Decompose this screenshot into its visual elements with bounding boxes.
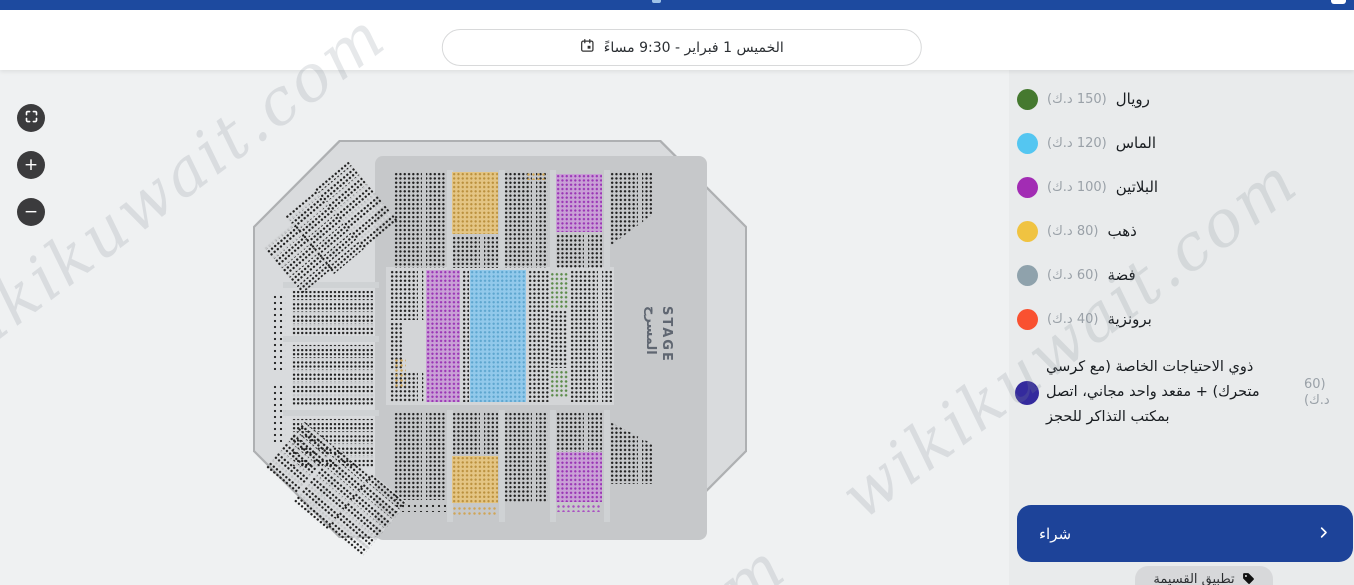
ticket-seatmap-page: الخميس 1 فبراير - 9:30 مساءً — [0, 0, 1354, 585]
seat-section-standard[interactable] — [556, 234, 602, 268]
tier-row-platinum[interactable]: (100 د.ك) البلاتين — [1009, 165, 1354, 209]
fit-screen-button[interactable] — [17, 104, 45, 132]
tier-name: الماس — [1116, 134, 1156, 152]
seat-section-standard[interactable] — [528, 270, 549, 402]
chevron-right-icon — [1316, 525, 1331, 543]
seat-section-royal[interactable] — [550, 370, 568, 398]
zoom-in-button[interactable]: + — [17, 151, 45, 179]
tier-row-silver[interactable]: (60 د.ك) فضة — [1009, 253, 1354, 297]
seat-section-standard[interactable] — [272, 384, 286, 442]
seat-section-platinum[interactable] — [426, 270, 460, 402]
tier-price: (120 د.ك) — [1047, 136, 1107, 151]
tier-color-swatch — [1017, 221, 1038, 242]
tier-name: فضة — [1107, 266, 1135, 284]
header: الخميس 1 فبراير - 9:30 مساءً — [0, 10, 1354, 70]
aisle — [604, 170, 610, 270]
stage-label: STAGE المسرح — [642, 306, 674, 363]
seat-section-standard[interactable] — [462, 270, 469, 402]
tier-color-swatch — [1015, 381, 1039, 405]
seat-section-gold[interactable] — [452, 456, 498, 503]
seat-section-standard[interactable] — [292, 344, 374, 406]
aisle — [604, 410, 610, 522]
seat-section-standard[interactable] — [452, 236, 498, 268]
stage-label-en: STAGE — [658, 306, 674, 363]
tier-price: (150 د.ك) — [1047, 92, 1107, 107]
tier-name: رويال — [1116, 90, 1150, 108]
seat-section-platinum[interactable] — [556, 452, 602, 502]
menu-fragment — [1331, 0, 1346, 4]
buy-button-label: شراء — [1039, 525, 1071, 543]
stage-label-ar: المسرح — [642, 306, 658, 363]
seat-section-standard[interactable] — [550, 310, 568, 368]
seat-section-gold[interactable] — [452, 172, 498, 234]
plus-icon: + — [24, 157, 38, 174]
tier-color-swatch — [1017, 309, 1038, 330]
tier-row-bronze[interactable]: (40 د.ك) برونزية — [1009, 297, 1354, 341]
pricing-legend-panel: (150 د.ك) رويال (120 د.ك) الماس (100 د.ك… — [1009, 70, 1354, 585]
zoom-out-button[interactable]: − — [17, 198, 45, 226]
seat-section-standard[interactable] — [394, 172, 446, 268]
logo-fragment — [652, 0, 661, 3]
tier-name: ذهب — [1107, 222, 1136, 240]
tier-list: (150 د.ك) رويال (120 د.ك) الماس (100 د.ك… — [1009, 70, 1354, 341]
tier-color-swatch — [1017, 133, 1038, 154]
tier-price: (40 د.ك) — [1047, 312, 1098, 327]
seat-section-standard[interactable] — [452, 412, 498, 456]
buy-button[interactable]: شراء — [1017, 505, 1353, 562]
tier-color-swatch — [1017, 265, 1038, 286]
apply-coupon-label: تطبيق القسيمة — [1153, 572, 1234, 585]
tag-icon — [1242, 570, 1255, 585]
selected-showtime: الخميس 1 فبراير - 9:30 مساءً — [604, 40, 784, 56]
tier-name: برونزية — [1107, 310, 1151, 328]
minus-icon: − — [24, 204, 38, 221]
seat-section-diamond[interactable] — [470, 270, 526, 402]
seat-section-standard[interactable] — [292, 290, 374, 336]
seat-section-gold[interactable] — [452, 506, 498, 516]
seat-section-gold[interactable] — [526, 172, 546, 180]
aisle — [283, 410, 379, 416]
tier-name: ذوي الاحتياجات الخاصة (مع كرسي متحرك) + … — [1046, 355, 1297, 430]
seat-section-royal[interactable] — [550, 272, 568, 308]
tier-row-accessible[interactable]: ذوي الاحتياجات الخاصة (مع كرسي متحرك) + … — [1009, 345, 1354, 440]
seat-section-standard[interactable] — [272, 294, 286, 370]
seat-section-gold[interactable] — [394, 358, 406, 388]
tier-name: البلاتين — [1116, 178, 1158, 196]
seat-section-standard[interactable] — [504, 412, 548, 502]
seat-section-platinum[interactable] — [556, 174, 602, 232]
tier-price: (60 د.ك) — [1304, 377, 1344, 409]
calendar-icon — [580, 38, 595, 57]
fit-screen-icon — [24, 109, 39, 128]
apply-coupon-button[interactable]: تطبيق القسيمة — [1135, 566, 1273, 585]
seat-section-standard[interactable] — [504, 172, 548, 268]
aisle — [283, 336, 379, 342]
tier-row-royal[interactable]: (150 د.ك) رويال — [1009, 77, 1354, 121]
seat-section-standard[interactable] — [394, 412, 446, 500]
tier-price: (100 د.ك) — [1047, 180, 1107, 195]
tier-color-swatch — [1017, 177, 1038, 198]
seat-section-platinum[interactable] — [556, 504, 600, 512]
seat-section-standard[interactable] — [390, 270, 425, 320]
seat-section-standard[interactable] — [556, 412, 602, 452]
top-nav-bar — [0, 0, 1354, 10]
seat-map-area[interactable]: STAGE المسرح + − — [0, 70, 1009, 585]
tier-color-swatch — [1017, 89, 1038, 110]
seat-section-standard[interactable] — [570, 270, 612, 402]
date-selector[interactable]: الخميس 1 فبراير - 9:30 مساءً — [442, 29, 922, 66]
tier-row-gold[interactable]: (80 د.ك) ذهب — [1009, 209, 1354, 253]
tier-price: (80 د.ك) — [1047, 224, 1098, 239]
tier-price: (60 د.ك) — [1047, 268, 1098, 283]
tier-row-diamond[interactable]: (120 د.ك) الماس — [1009, 121, 1354, 165]
